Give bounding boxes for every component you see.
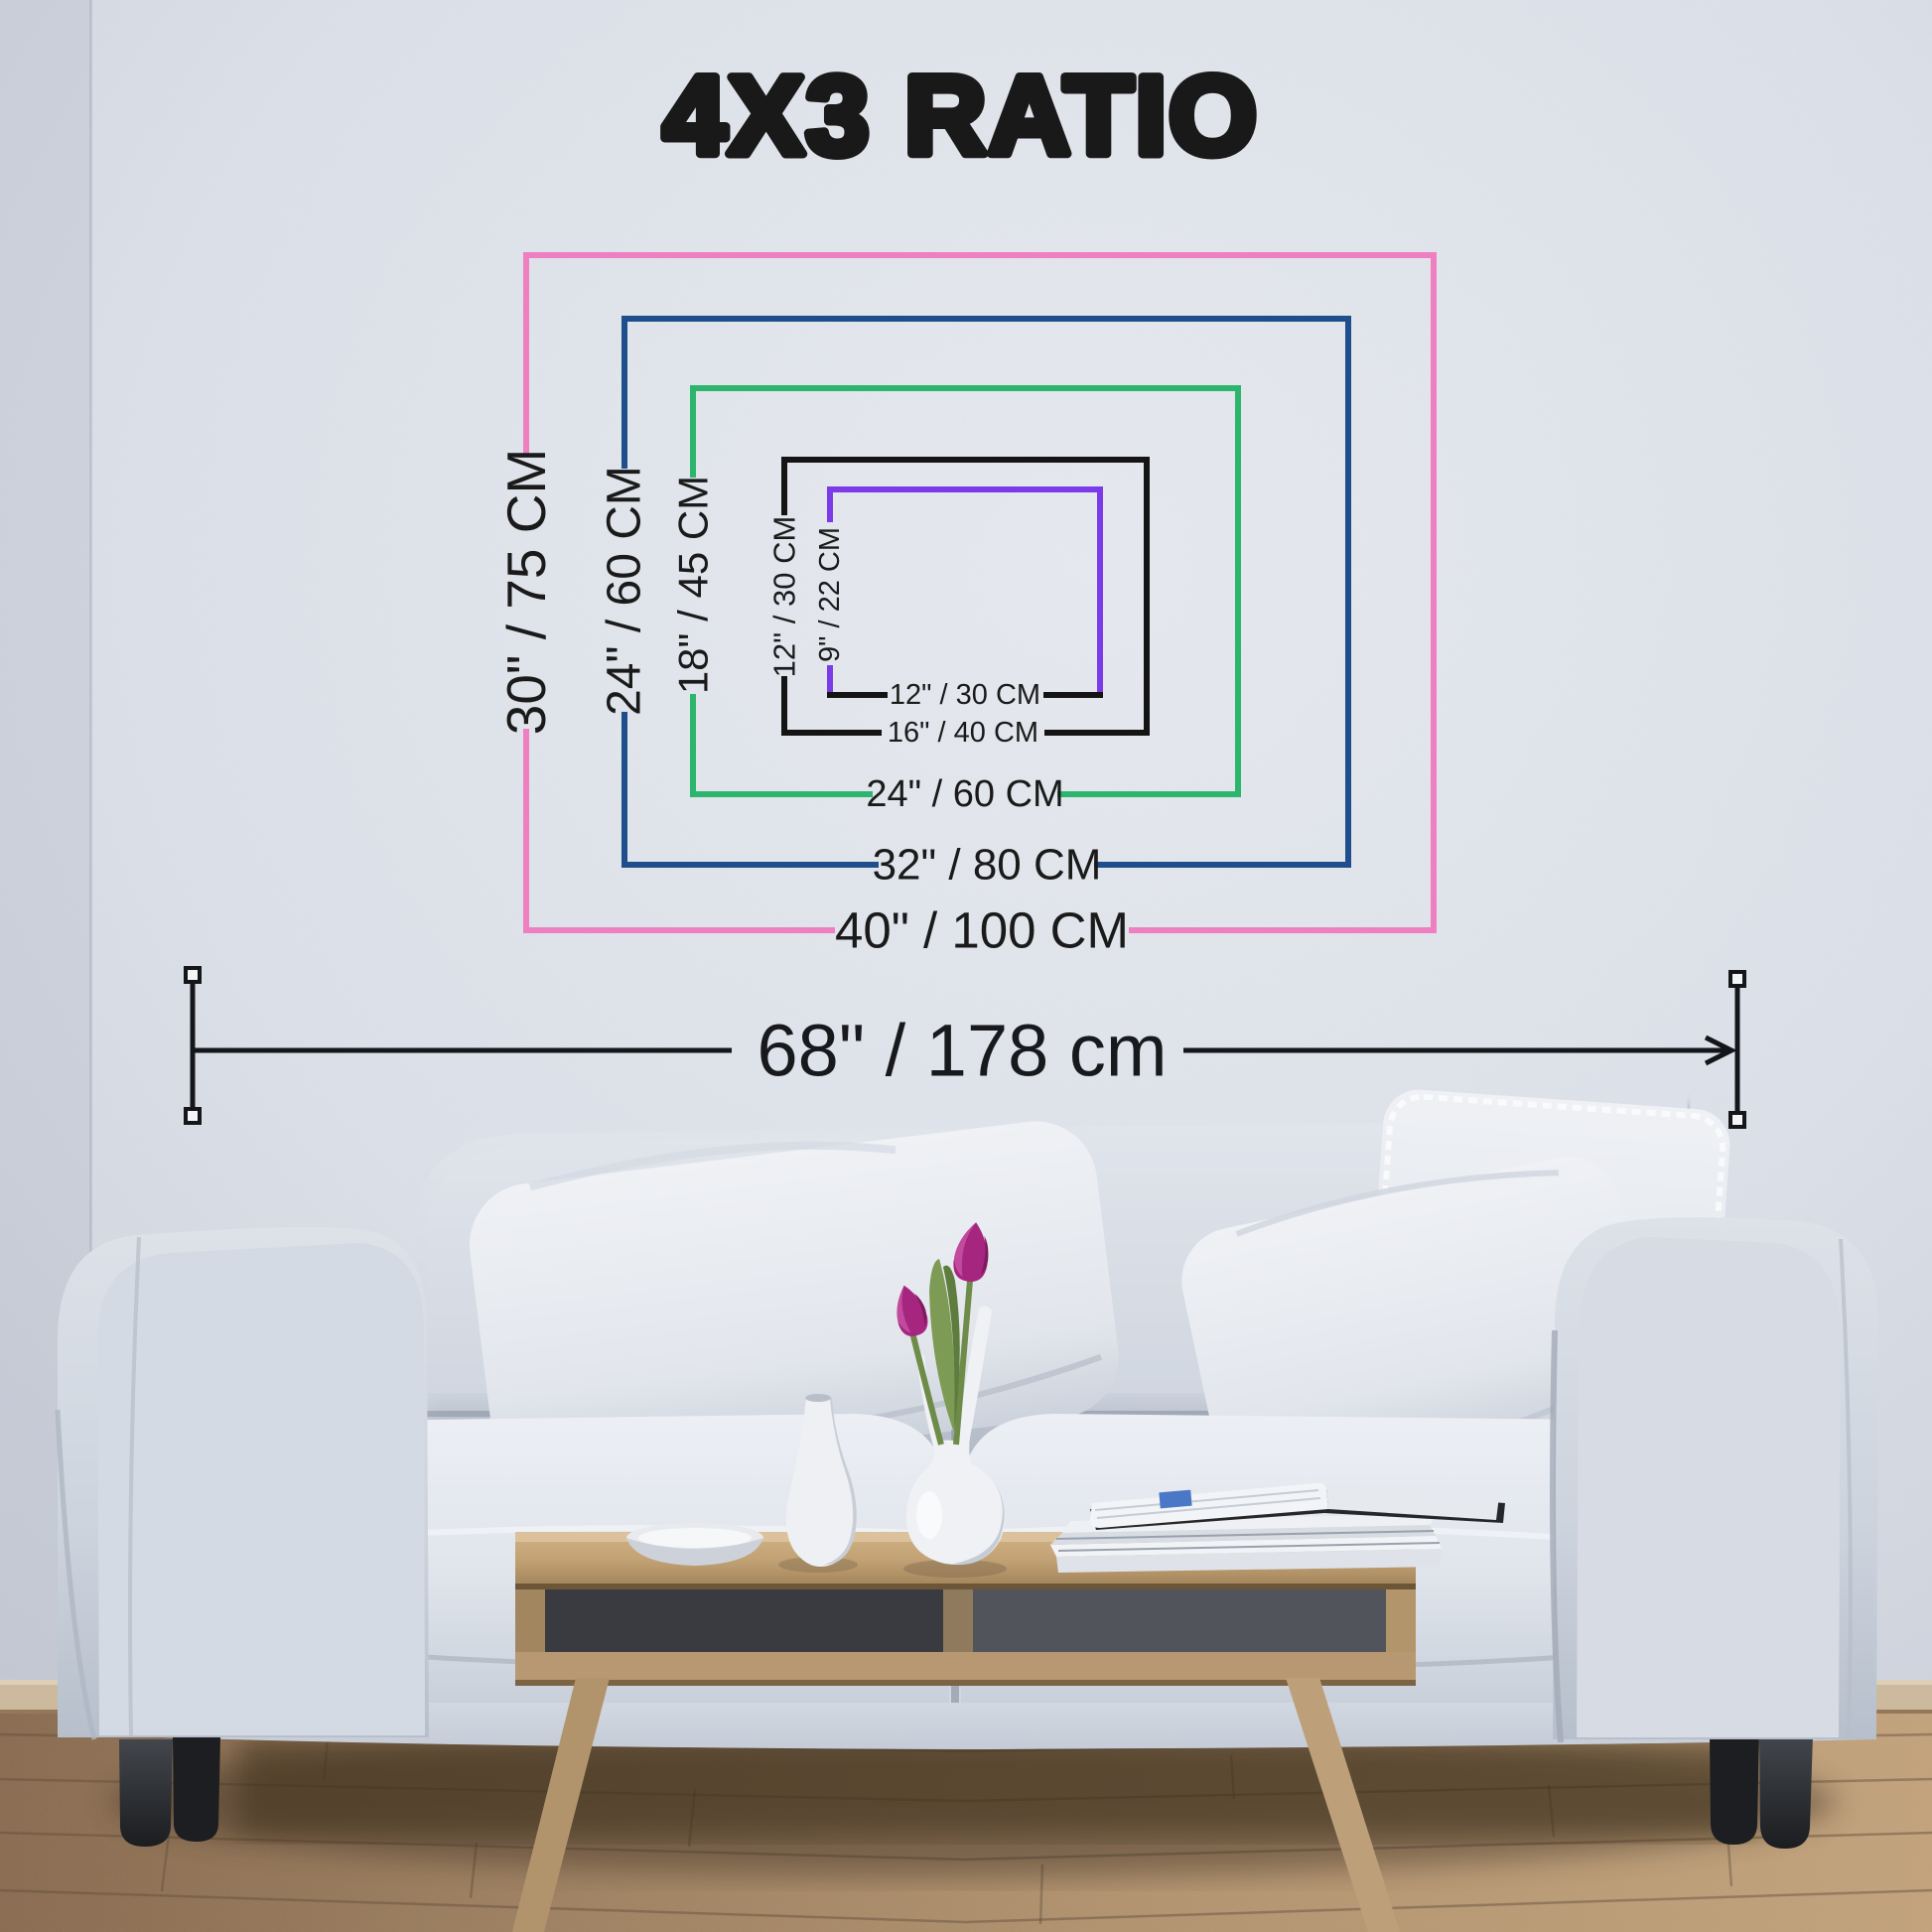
svg-text:24" / 60 CM: 24" / 60 CM	[866, 773, 1063, 815]
svg-text:40" / 100 CM: 40" / 100 CM	[835, 902, 1129, 959]
svg-text:68" / 178 cm: 68" / 178 cm	[758, 1010, 1168, 1092]
svg-text:12" / 30 CM: 12" / 30 CM	[890, 679, 1040, 711]
svg-text:18" / 45 CM: 18" / 45 CM	[670, 476, 717, 694]
svg-text:9" / 22 CM: 9" / 22 CM	[814, 527, 846, 662]
svg-text:4X3 RATIO: 4X3 RATIO	[663, 54, 1259, 178]
svg-text:30" / 75 CM: 30" / 75 CM	[495, 449, 557, 736]
svg-text:24" / 60 CM: 24" / 60 CM	[599, 466, 651, 716]
svg-text:12" / 30 CM: 12" / 30 CM	[767, 516, 802, 678]
svg-text:32" / 80 CM: 32" / 80 CM	[873, 841, 1102, 890]
svg-text:16" / 40 CM: 16" / 40 CM	[888, 717, 1038, 749]
